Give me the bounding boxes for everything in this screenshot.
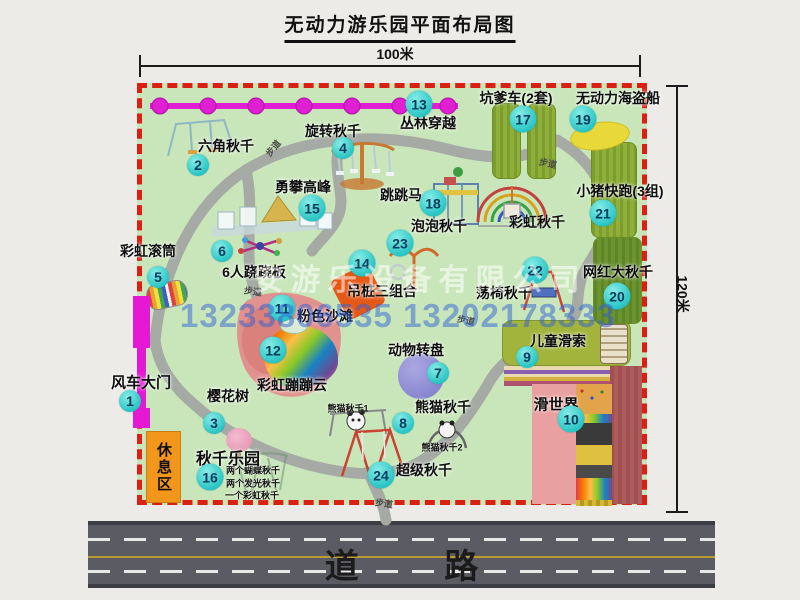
road: 道 路 — [88, 521, 715, 588]
poi-label-17: 坑爹车(2套) — [479, 88, 552, 108]
slide-world-red-strip — [610, 366, 642, 504]
poi-badge-3: 3 — [203, 412, 225, 434]
watermark-phone: 13233806535 13202178333 — [180, 297, 616, 335]
poi-badge-19: 19 — [570, 106, 597, 133]
slide-world-rainbow-band — [576, 478, 612, 500]
poi-badge-17: 17 — [510, 106, 537, 133]
slide-world-yellow-band — [576, 445, 612, 465]
poi-label-8: 熊猫秋千 — [415, 397, 471, 417]
dimension-tick — [639, 55, 641, 77]
poi-label-13: 丛林穿越 — [400, 113, 456, 133]
poi-label-18: 跳跳马 — [380, 185, 422, 205]
walkway-label-5: 步道 — [374, 495, 394, 510]
poi-label-21: 小猪快跑(3组) — [576, 181, 663, 201]
poi-badge-5: 5 — [147, 266, 169, 288]
poi-badge-6: 6 — [211, 240, 233, 262]
poi-label-1: 风车大门 — [111, 372, 171, 393]
width-dimension-line — [140, 65, 640, 67]
poi-badge-21: 21 — [590, 200, 617, 227]
poi-label-3: 樱花树 — [207, 386, 249, 406]
dimension-tick — [666, 85, 688, 87]
poi-label-24: 超级秋千 — [396, 460, 452, 480]
poi-label-7: 动物转盘 — [388, 340, 444, 360]
road-label: 道 路 — [88, 539, 715, 588]
windmill-gate-icon — [133, 296, 150, 348]
poi-badge-18: 18 — [420, 190, 447, 217]
poi-badge-12: 12 — [260, 337, 287, 364]
poi-badge-16: 16 — [197, 464, 224, 491]
poi-label-23: 泡泡秋千 — [411, 216, 467, 236]
poi-badge-4: 4 — [332, 137, 354, 159]
dimension-tick — [139, 55, 141, 77]
rainbow-swing-label: 彩虹秋千 — [509, 212, 565, 232]
poi-badge-7: 7 — [427, 362, 449, 384]
poi-badge-15: 15 — [299, 195, 326, 222]
panda-swing-2-label: 熊猫秋千2 — [421, 441, 462, 454]
poi-label-15: 勇攀高峰 — [275, 177, 331, 197]
poi-label-20: 网红大秋千 — [583, 262, 653, 282]
poi-label-5: 彩虹滚筒 — [120, 241, 176, 261]
rest-area-label: 休息区 — [153, 442, 174, 493]
poi-badge-1: 1 — [119, 390, 141, 412]
poi-label-12: 彩虹蹦蹦云 — [257, 375, 327, 395]
park-layout-map: 无动力游乐园平面布局图 100米 120米 — [0, 0, 800, 600]
poi-badge-8: 8 — [392, 412, 414, 434]
windmill-gate-icon — [133, 408, 150, 428]
poi-badge-10: 10 — [558, 406, 585, 433]
poi-badge-24: 24 — [368, 462, 395, 489]
slide-world-dark-band — [576, 465, 612, 478]
width-dimension-label: 100米 — [360, 44, 430, 64]
poi-badge-23: 23 — [387, 230, 414, 257]
dimension-tick — [666, 511, 688, 513]
poi-badge-2: 2 — [187, 154, 209, 176]
swing-park-note-3: 一个彩虹秋千 — [225, 489, 279, 502]
poi-badge-13: 13 — [406, 91, 433, 118]
slide-world-wave-band — [576, 500, 612, 506]
height-dimension-label: 120米 — [673, 275, 693, 312]
poi-label-19: 无动力海盗船 — [576, 88, 660, 108]
watermark-company: 安游乐设备有限公司 — [254, 255, 587, 299]
rest-area-box: 休息区 — [146, 431, 181, 503]
panda-swing-1-label: 熊猫秋千1 — [327, 402, 368, 415]
poi-badge-9: 9 — [516, 346, 538, 368]
poi-label-4: 旋转秋千 — [305, 121, 361, 141]
poi-label-2: 六角秋千 — [198, 136, 254, 156]
map-title: 无动力游乐园平面布局图 — [284, 10, 515, 43]
